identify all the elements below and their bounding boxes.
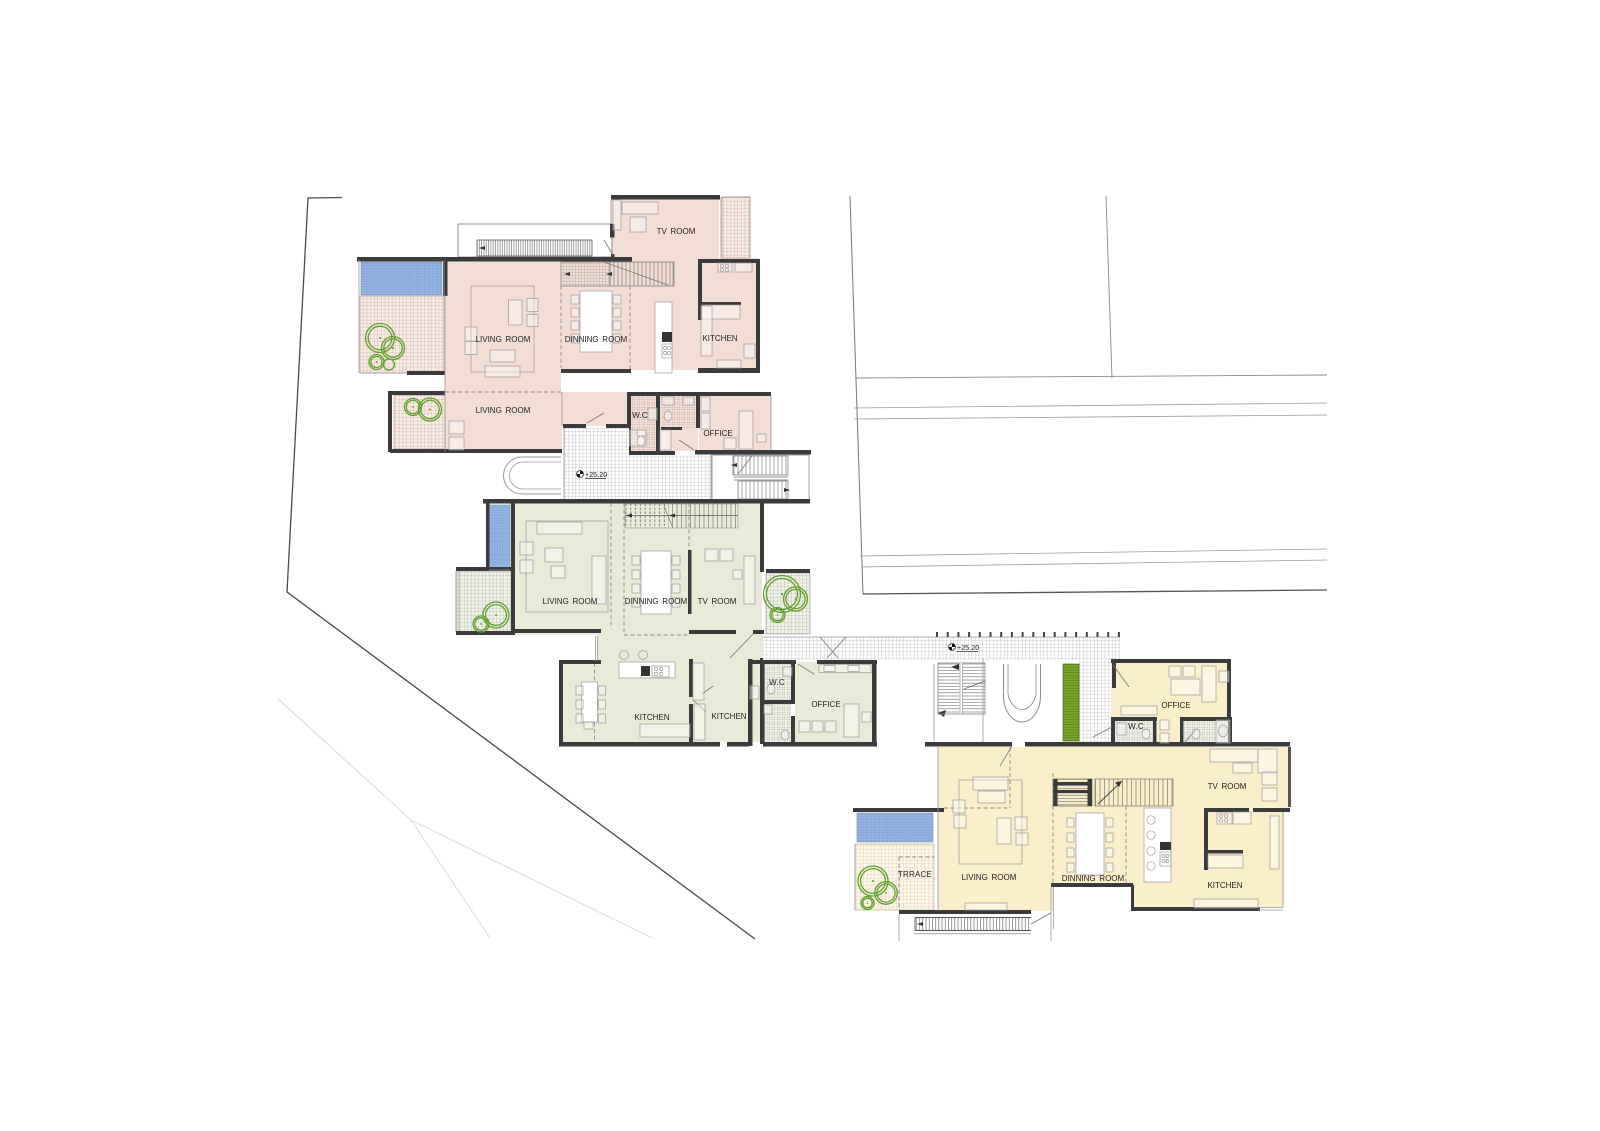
svg-text:OFFICE: OFFICE (811, 700, 840, 709)
svg-text:KITCHEN: KITCHEN (634, 713, 669, 722)
svg-text:KITCHEN: KITCHEN (702, 334, 737, 343)
svg-text:TV ROOM: TV ROOM (657, 227, 696, 236)
svg-text:LIVING ROOM: LIVING ROOM (543, 597, 598, 606)
svg-text:OFFICE: OFFICE (1161, 701, 1190, 710)
svg-text:W.C: W.C (1128, 722, 1144, 731)
svg-text:DINNING ROOM: DINNING ROOM (625, 597, 688, 606)
svg-text:W.C: W.C (769, 678, 785, 687)
svg-text:LIVING ROOM: LIVING ROOM (476, 335, 531, 344)
svg-text:LIVING ROOM: LIVING ROOM (476, 406, 531, 415)
svg-text:W.C: W.C (632, 411, 648, 420)
svg-text:OFFICE: OFFICE (703, 429, 732, 438)
svg-text:+25.20: +25.20 (957, 645, 979, 652)
svg-text:TV ROOM: TV ROOM (698, 597, 737, 606)
svg-text:KITCHEN: KITCHEN (1207, 881, 1242, 890)
svg-text:+25.20: +25.20 (585, 472, 607, 479)
svg-text:DINNING ROOM: DINNING ROOM (565, 335, 628, 344)
svg-text:TRRACE: TRRACE (898, 870, 932, 879)
svg-text:KITCHEN: KITCHEN (711, 712, 746, 721)
svg-text:LIVING ROOM: LIVING ROOM (962, 873, 1017, 882)
svg-text:TV ROOM: TV ROOM (1208, 782, 1247, 791)
svg-text:DINNING ROOM: DINNING ROOM (1062, 874, 1125, 883)
